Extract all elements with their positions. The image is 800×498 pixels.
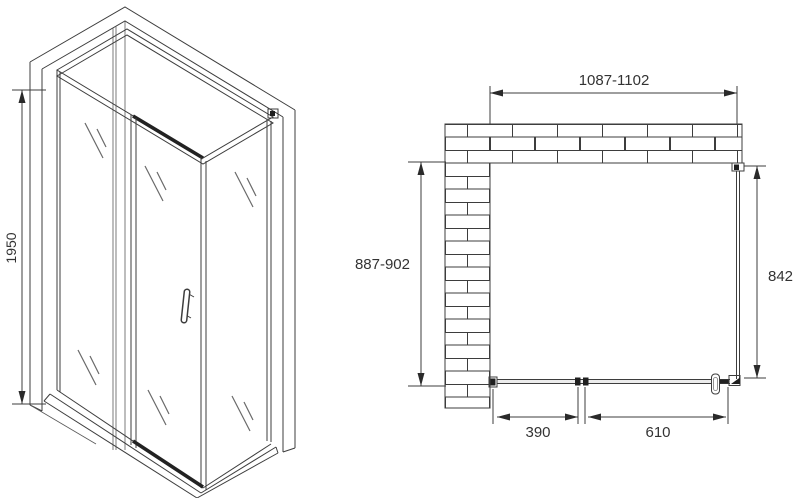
side-arrow-down-icon: [754, 365, 761, 378]
width-dim-label: 1087-1102: [579, 72, 650, 89]
plan-brick-walls: [445, 124, 742, 408]
fixed-arrow-left-icon: [497, 414, 510, 421]
plan-view: 1087-1102 887-902 842 390: [355, 72, 793, 441]
dim-door-section: 610: [585, 387, 728, 441]
door-extension-lines: [585, 387, 728, 424]
wall-bottom-through-glass: [30, 405, 96, 444]
center-pivot-fitting-right: [583, 378, 589, 386]
iso-top-frame: [57, 29, 273, 164]
side-panel-wall-bracket-dot: [270, 111, 275, 116]
fixed-arrow-right-icon: [565, 414, 578, 421]
width-extension-lines: [490, 86, 737, 125]
corner-connector-wedge: [731, 378, 740, 385]
center-pivot-fitting-left: [575, 378, 581, 386]
side-extension-lines: [744, 166, 766, 378]
side-glass-bottom-edge: [203, 444, 271, 488]
height-dim-label: 1950: [3, 232, 19, 263]
glass-mark-fixed-upper: [85, 123, 106, 158]
iso-dimension-height: 1950: [3, 90, 46, 404]
door-handle: [184, 292, 194, 320]
top-frame-outer: [57, 29, 273, 158]
dim-depth: 887-902: [355, 162, 446, 386]
glass-mark-door-upper: [145, 166, 166, 201]
wall-left-end-edges: [30, 62, 42, 411]
door-top-rail: [133, 116, 203, 158]
tray-bottom-front-edge: [44, 401, 197, 498]
depth-extension-lines: [408, 162, 446, 386]
dim-side: 842: [744, 166, 793, 378]
plan-brick-wall-left: [445, 163, 490, 408]
depth-arrow-up-icon: [418, 162, 425, 175]
glass-mark-side-upper: [235, 172, 256, 207]
depth-arrow-down-icon: [418, 373, 425, 386]
top-frame-inner: [57, 35, 273, 164]
wall-right-end-edges: [283, 110, 295, 452]
side-dim-label: 842: [768, 268, 793, 285]
side-arrow-up-icon: [754, 166, 761, 179]
glass-mark-fixed-lower: [78, 350, 99, 385]
iso-view: 1950: [3, 7, 295, 498]
side-glass-lines: [737, 171, 740, 379]
front-right-corner-post: [201, 157, 206, 490]
glass-mark-door-lower: [148, 390, 169, 425]
plan-front-track: [489, 374, 740, 394]
height-arrow-down-icon: [19, 391, 26, 404]
wall-corner-profile-edges: [113, 26, 116, 450]
tray-top-side-edge: [201, 447, 276, 493]
left-wall-profile-dot: [491, 379, 496, 386]
plan-brick-wall-top: [445, 124, 742, 163]
tray-left-cap: [44, 394, 50, 401]
wall-top-outer-edge: [30, 7, 295, 110]
wall-right-bottom-cap: [283, 448, 295, 452]
iso-walls: [30, 7, 295, 452]
plan-side-glass-panel: [732, 163, 744, 379]
wall-top-inner-edge: [42, 21, 283, 117]
side-panel-back-edge: [267, 119, 271, 442]
glass-mark-side-lower: [232, 396, 253, 431]
door-mullion-profile: [131, 115, 136, 448]
technical-drawing: 1950: [0, 0, 800, 498]
front-left-wall-profile: [57, 70, 60, 392]
tray-top-front-edge: [50, 394, 201, 493]
width-arrow-right-icon: [724, 90, 737, 97]
door-dim-label: 610: [645, 424, 670, 441]
iso-tray: [44, 390, 278, 498]
fixed-dim-label: 390: [525, 424, 550, 441]
plan-door-knob: [712, 374, 720, 394]
dim-fixed-section: 390: [493, 387, 578, 441]
tray-bottom-side-edge: [197, 453, 278, 498]
width-arrow-left-icon: [490, 90, 503, 97]
technical-drawing-sheet: 1950: [0, 0, 800, 498]
glass-reflection-marks: [78, 123, 256, 431]
height-arrow-up-icon: [19, 90, 26, 103]
tray-right-cap: [276, 447, 278, 453]
depth-dim-label: 887-902: [355, 256, 410, 273]
door-arrow-left-icon: [588, 414, 601, 421]
door-arrow-right-icon: [713, 414, 726, 421]
track-fill: [497, 380, 730, 384]
dim-width: 1087-1102: [490, 72, 737, 125]
side-wall-profile-dot: [734, 165, 739, 171]
